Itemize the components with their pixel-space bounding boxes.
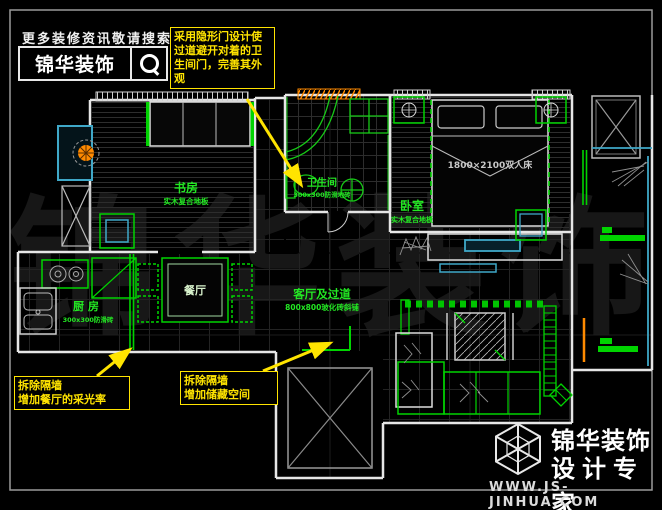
callout-line: 拆除隔墙 bbox=[18, 379, 126, 393]
brand-name: 锦华装饰 bbox=[20, 50, 130, 77]
label-bedroom: 卧室 bbox=[400, 198, 424, 213]
callout-line: 增加餐厅的采光率 bbox=[18, 393, 126, 407]
label-living: 客厅及过道 bbox=[292, 287, 351, 301]
callout-dining-light: 拆除隔墙 增加餐厅的采光率 bbox=[14, 376, 130, 410]
footer-website: WWW.JS-JINHUA.COM bbox=[489, 480, 662, 510]
label-kitchen: 厨房 bbox=[73, 299, 103, 313]
label-living-floor: 800x800玻化砖斜铺 bbox=[285, 302, 359, 312]
balcony-right bbox=[583, 148, 652, 366]
floorplan-page: 锦华装饰 bbox=[0, 0, 662, 510]
label-dining: 餐厅 bbox=[183, 283, 206, 297]
arrow-dining-light bbox=[97, 351, 128, 376]
label-bed-size: 1800×2100双人床 bbox=[448, 159, 534, 171]
search-icon bbox=[132, 54, 166, 73]
callout-line: 拆除隔墙 bbox=[184, 374, 274, 388]
header-tagline: 更多装修资讯敬请搜索 bbox=[22, 28, 172, 47]
label-study-floor: 实木复合地板 bbox=[164, 196, 209, 206]
label-bath: 卫生间 bbox=[307, 176, 337, 189]
structural-column-left bbox=[62, 186, 90, 246]
tv-icon bbox=[465, 240, 520, 251]
callout-line: 增加储藏空间 bbox=[184, 388, 274, 402]
callout-hidden-door: 采用隐形门设计使过道避开对着的卫生间门，完善其外观 bbox=[170, 27, 275, 89]
hidden-door-lintel bbox=[298, 89, 360, 99]
brand-search-box: 锦华装饰 bbox=[18, 46, 168, 81]
callout-storage: 拆除隔墙 增加储藏空间 bbox=[180, 371, 278, 405]
bay-window bbox=[58, 126, 99, 180]
label-bath-floor: 300x300防滑地砖 bbox=[293, 190, 351, 199]
cube-logo-icon bbox=[490, 421, 546, 479]
label-study: 书房 bbox=[174, 180, 198, 195]
label-bedroom-floor: 实木复合地板 bbox=[391, 215, 434, 224]
label-kitchen-floor: 300x300防滑砖 bbox=[63, 315, 114, 324]
